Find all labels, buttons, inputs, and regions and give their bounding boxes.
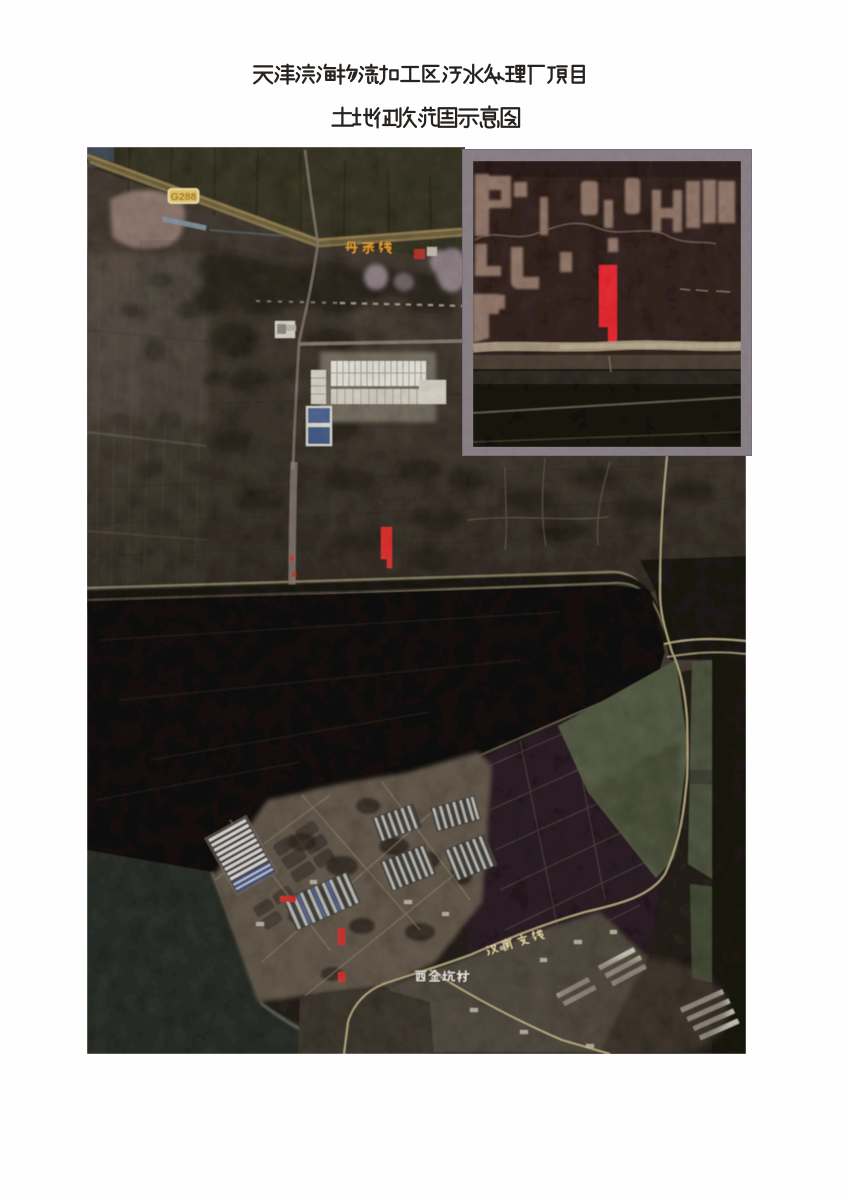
svg-text:G288: G288 [171, 191, 197, 203]
